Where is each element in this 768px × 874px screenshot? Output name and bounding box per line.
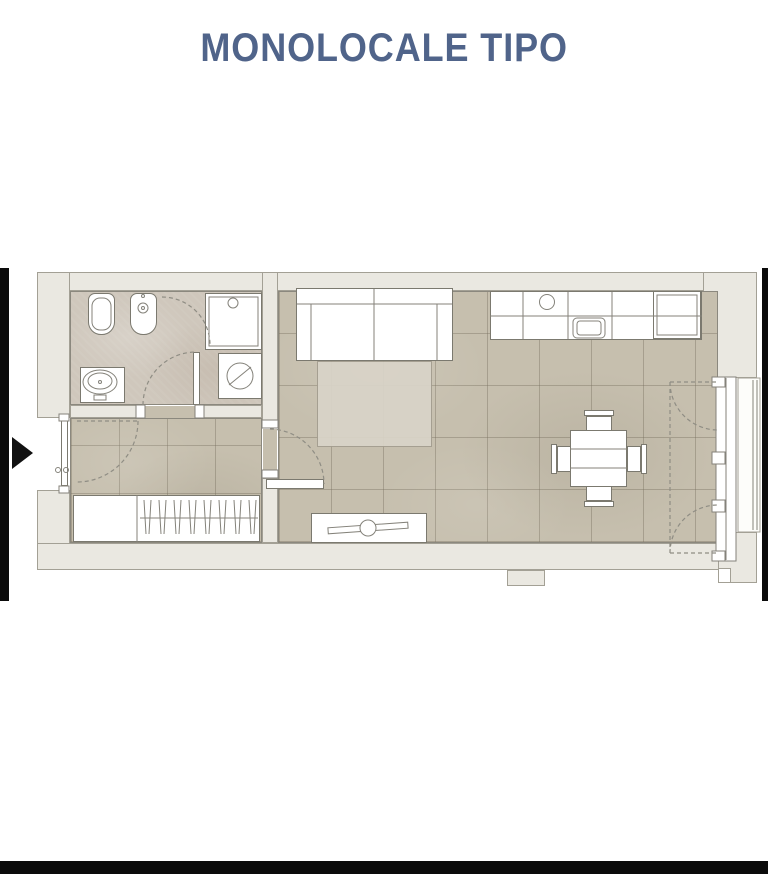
wardrobe <box>73 495 260 542</box>
shower-box <box>205 293 262 350</box>
balcony <box>738 378 760 532</box>
balcony-railing <box>753 380 757 530</box>
dining-table <box>570 430 627 487</box>
wall-left-upper <box>37 272 70 418</box>
bathroom-door-leaf <box>193 352 200 405</box>
bathroom-door-opening <box>144 406 195 418</box>
wall-bathroom-bottom-right <box>196 405 262 418</box>
sofa-bed <box>296 288 453 361</box>
title-block: MONOLOCALE TIPO <box>0 26 768 71</box>
page: MONOLOCALE TIPO <box>0 0 768 874</box>
hall-living-opening <box>263 429 277 478</box>
wall-bottom-step <box>507 570 545 586</box>
entrance-arrow-icon <box>12 437 33 469</box>
floor-plan <box>0 268 768 602</box>
washing-machine <box>218 353 262 399</box>
chair-left-seat <box>557 446 571 472</box>
wall-bottom <box>37 543 738 570</box>
entry-door-leaf <box>61 420 68 486</box>
wall-bathroom-bottom-left <box>70 405 143 418</box>
chair-bottom-seat <box>586 486 612 501</box>
chair-right-seat <box>627 446 641 472</box>
washbasin-vanity <box>80 367 125 403</box>
rug <box>317 361 432 447</box>
chair-top-seat <box>586 416 612 431</box>
bidet <box>130 293 157 335</box>
toilet <box>88 293 115 335</box>
wall-bathroom-right-upper <box>262 272 278 428</box>
page-title: MONOLOCALE TIPO <box>200 26 567 71</box>
chair-right-back <box>641 444 647 474</box>
fridge-column <box>653 291 701 339</box>
tv-sideboard <box>311 513 427 543</box>
frame-bar-bottom <box>0 861 768 874</box>
hall-door-leaf <box>266 479 324 489</box>
chair-bottom-back <box>584 501 614 507</box>
wall-bottom-right-notch <box>718 568 731 583</box>
